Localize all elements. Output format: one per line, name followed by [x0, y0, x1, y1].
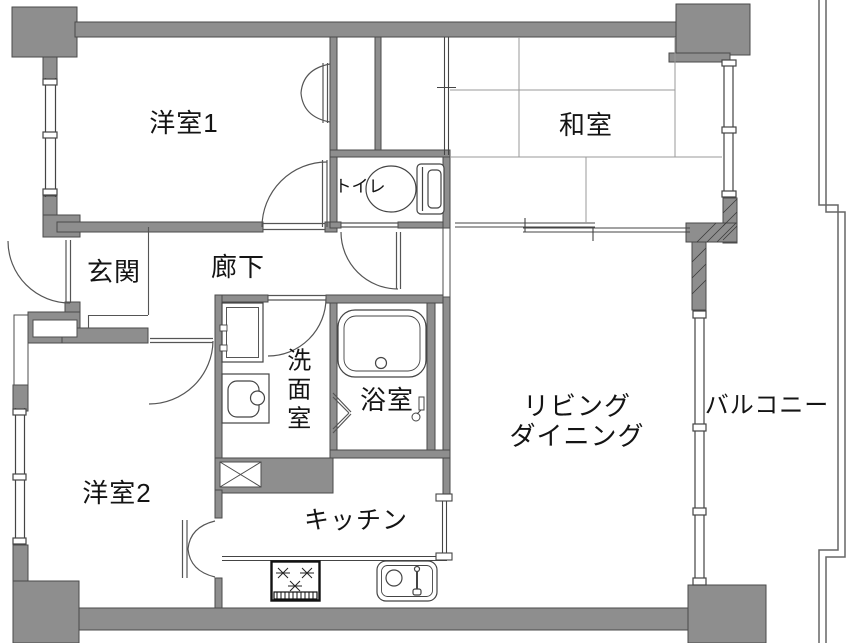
living-label-line1: リビング [509, 392, 644, 422]
room-label-kitchen: キッチン [304, 507, 408, 536]
window-living [693, 310, 706, 585]
door-toilet [341, 223, 401, 289]
window-yoshitsu2 [13, 408, 26, 545]
room-label-living: リビング ダイニング [509, 392, 644, 452]
floor-plan: 洋室1 和室 トイレ 玄関 廊下 洗面室 浴室 リビング ダイニング バルコニー… [0, 0, 858, 643]
room-label-yoshitsu2: 洋室2 [82, 479, 151, 509]
window-yoshitsu1 [43, 78, 57, 197]
door-entrance [8, 240, 71, 303]
gas-stove-icon [272, 562, 320, 601]
door-yoshitsu1 [262, 160, 327, 230]
room-label-balcony: バルコニー [705, 392, 830, 420]
pipe-space-x-icon [220, 462, 261, 487]
vanity-sink-icon [222, 374, 269, 423]
room-label-washitsu: 和室 [559, 111, 613, 141]
room-label-rouka: 廊下 [211, 253, 265, 283]
balcony-railing [819, 0, 845, 643]
window-washitsu [722, 60, 736, 198]
room-label-yoshitsu1: 洋室1 [149, 109, 218, 139]
room-label-genkan: 玄関 [87, 258, 141, 288]
bifold-yoshitsu2 [183, 520, 216, 578]
kitchen-sink-icon [377, 561, 437, 601]
bathtub-icon [338, 310, 426, 377]
floor-plan-drawing [0, 0, 858, 643]
door-yoshitsu2 [149, 339, 213, 405]
room-label-toilet: トイレ [335, 177, 386, 197]
washing-machine-pan-icon [220, 303, 263, 362]
room-label-senmenshitsu: 洗面室 [282, 348, 310, 435]
bifold-closet-yoshitsu1 [301, 63, 330, 123]
living-label-line2: ダイニング [509, 422, 644, 452]
room-label-yokushitsu: 浴室 [360, 386, 414, 416]
